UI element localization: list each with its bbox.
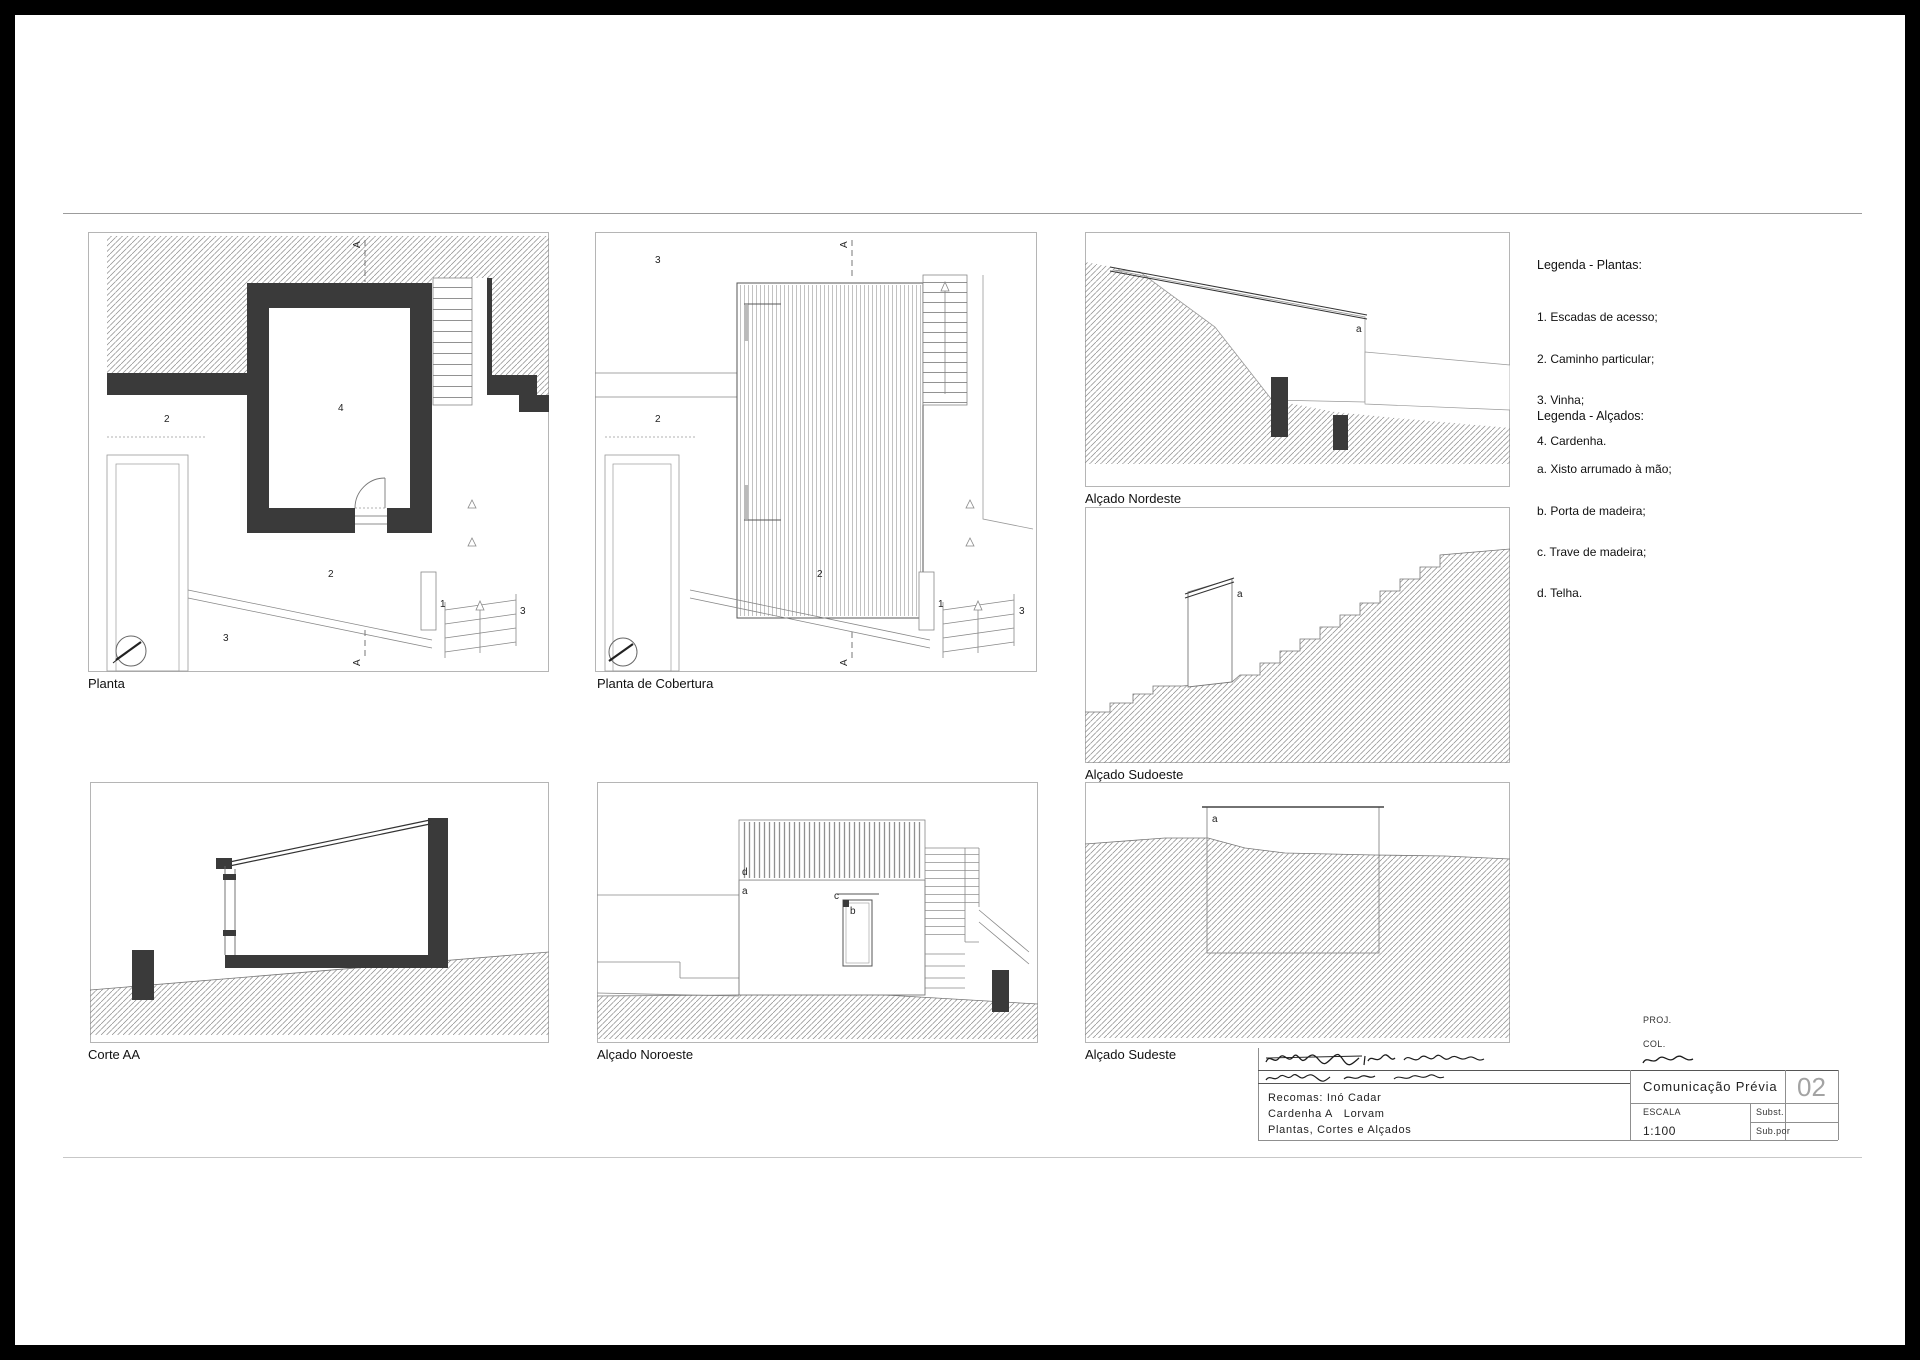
subst-label: Subst. (1756, 1107, 1784, 1117)
legend-item: 3. Vinha; (1537, 394, 1658, 408)
legend-item: c. Trave de madeira; (1537, 546, 1672, 560)
sudeste-caption: Alçado Sudeste (1085, 1047, 1176, 1062)
page-background: A A 4 2 2 3 1 3 Planta (0, 0, 1920, 1360)
title-block-divider (1630, 1070, 1631, 1140)
corte-drawing (90, 782, 549, 1043)
label-porta: b (850, 906, 856, 917)
sheet-top-rule (63, 213, 1862, 214)
legend-item: b. Porta de madeira; (1537, 505, 1672, 519)
nordeste-caption: Alçado Nordeste (1085, 491, 1181, 506)
planta-drawing: A A 4 2 2 3 1 3 (88, 232, 549, 672)
noroeste-ground-hatch (597, 994, 1038, 1039)
escala-value: 1:100 (1643, 1124, 1676, 1138)
label-caminho-2: 2 (817, 569, 823, 580)
label-trave: c (834, 891, 839, 902)
label-xisto: a (1356, 324, 1362, 335)
cobertura-drawing: A A 3 2 2 1 3 (595, 232, 1037, 672)
label-xisto: a (1237, 589, 1243, 600)
noroeste-drawing: d a c b (597, 782, 1038, 1043)
label-escadas: 1 (440, 599, 446, 610)
label-vinha-2: 3 (1019, 606, 1025, 617)
label-vinha: 3 (223, 633, 229, 644)
label-xisto: a (742, 886, 748, 897)
titleblock-row-conteudo: Plantas, Cortes e Alçados (1268, 1124, 1411, 1136)
legend-alcados-items: a. Xisto arrumado à mão; b. Porta de mad… (1537, 436, 1672, 628)
col-label: COL. (1643, 1039, 1666, 1049)
title-block-line (1258, 1083, 1630, 1084)
titleblock-row-obra: Cardenha A Lorvam (1268, 1108, 1385, 1120)
section-mark-bottom: A (352, 659, 363, 666)
title-block-divider (1750, 1103, 1751, 1140)
label-caminho-2: 2 (328, 569, 334, 580)
drawing-sheet (15, 15, 1905, 1345)
legend-plantas-title: Legenda - Plantas: (1537, 258, 1642, 272)
legend-alcados-title: Legenda - Alçados: (1537, 409, 1644, 423)
title-block-left-edge (1258, 1048, 1259, 1140)
legend-item: a. Xisto arrumado à mão; (1537, 463, 1672, 477)
planta-caption: Planta (88, 676, 125, 691)
handwriting-scribble-row1 (1264, 1050, 1504, 1068)
sheet-bottom-rule (63, 1157, 1862, 1158)
label-telha: d (742, 867, 748, 878)
titleblock-row-requerente: Recomas: Inó Cadar (1268, 1092, 1381, 1104)
proj-label: PROJ. (1643, 1015, 1672, 1025)
cobertura-access-stairs (923, 275, 967, 405)
cobertura-roof (737, 283, 923, 618)
handwriting-scribble-row2 (1264, 1072, 1454, 1083)
title-block-line (1258, 1070, 1838, 1071)
section-mark-top: A (839, 241, 850, 248)
cobertura-caption: Planta de Cobertura (597, 676, 713, 691)
label-escadas: 1 (938, 599, 944, 610)
title-block-bottom-line (1258, 1140, 1838, 1141)
title-block-line (1750, 1122, 1838, 1123)
legend-item: 1. Escadas de acesso; (1537, 311, 1658, 325)
noroeste-building (739, 820, 925, 995)
legend-item: d. Telha. (1537, 587, 1672, 601)
escala-label: ESCALA (1643, 1107, 1681, 1117)
section-mark-top: A (352, 241, 363, 248)
label-vinha: 3 (655, 255, 661, 266)
sudeste-drawing: a (1085, 782, 1510, 1043)
label-xisto: a (1212, 814, 1218, 825)
noroeste-caption: Alçado Noroeste (597, 1047, 693, 1062)
sudeste-ground-hatch (1085, 838, 1510, 1038)
title-block-right-edge (1838, 1070, 1839, 1140)
handwriting-scribble-col (1641, 1053, 1696, 1067)
sudoeste-caption: Alçado Sudoeste (1085, 767, 1183, 782)
corte-caption: Corte AA (88, 1047, 140, 1062)
label-caminho: 2 (655, 414, 661, 425)
subpor-label: Sub.por (1756, 1126, 1790, 1136)
section-mark-bottom: A (839, 659, 850, 666)
legend-item: 2. Caminho particular; (1537, 353, 1658, 367)
label-caminho: 2 (164, 414, 170, 425)
nordeste-drawing: a (1085, 232, 1510, 487)
sudoeste-drawing: a (1085, 507, 1510, 763)
label-vinha-2: 3 (520, 606, 526, 617)
doc-type: Comunicação Prévia (1643, 1079, 1777, 1094)
planta-access-stairs (433, 278, 472, 405)
sheet-number: 02 (1785, 1072, 1838, 1103)
sudoeste-building (1185, 578, 1234, 687)
label-cardenha: 4 (338, 403, 344, 414)
title-block-line (1630, 1103, 1838, 1104)
